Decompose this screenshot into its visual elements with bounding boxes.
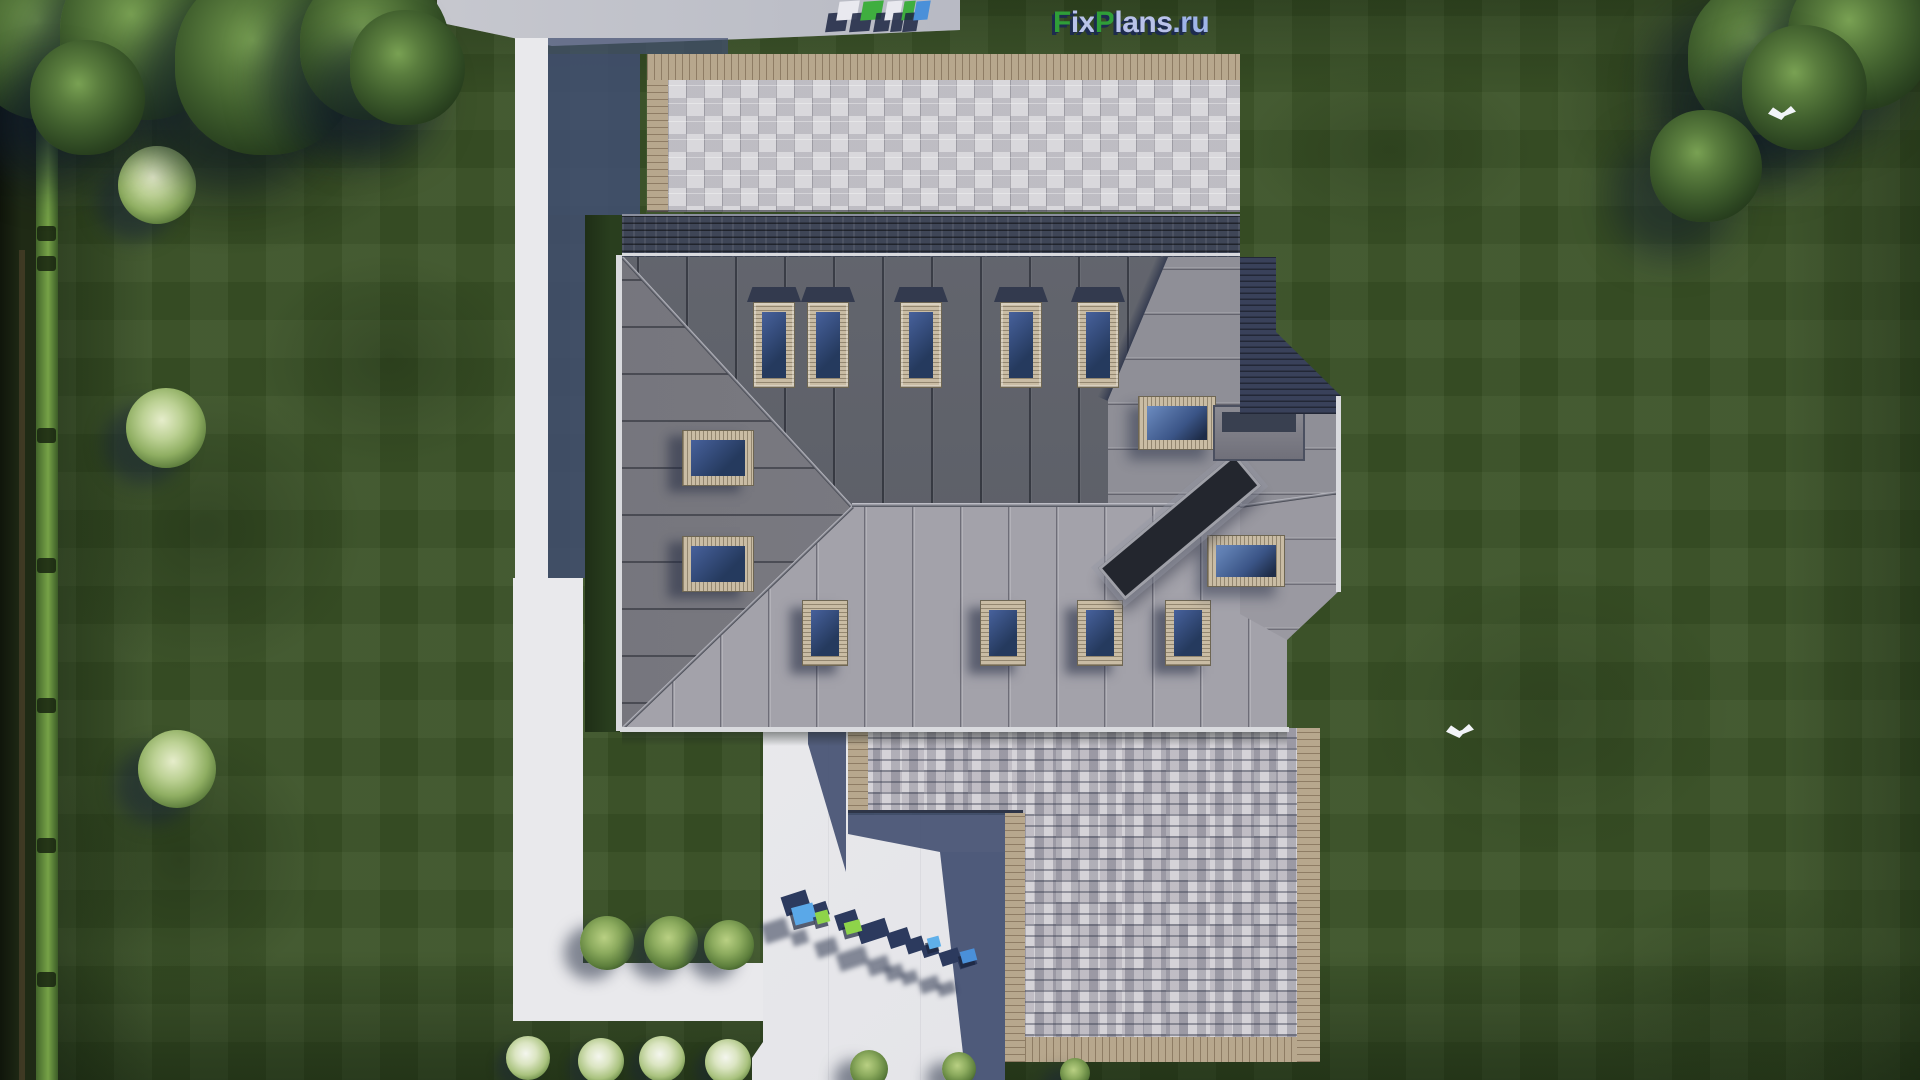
logo-part-fix-ix: ix <box>1071 6 1095 39</box>
patio-wood-border-top <box>647 54 1240 80</box>
garage-step-edge <box>848 810 1023 813</box>
patio-wing <box>647 54 1240 212</box>
roof-skylight <box>1077 600 1123 666</box>
logo-part-ru: .ru <box>1172 6 1209 39</box>
site-logo: FixPlans.ru <box>1053 6 1209 40</box>
skylight-glass <box>1086 610 1114 656</box>
boundary-fence <box>0 0 36 1080</box>
fascia-west <box>616 255 622 731</box>
garage-border-bottom <box>1025 1037 1320 1062</box>
walkway-horizontal <box>513 963 763 1021</box>
roof-skylight <box>980 600 1026 666</box>
walkway-vertical <box>515 38 548 578</box>
patio-wood-border-left <box>647 80 668 212</box>
eave-shadow <box>622 732 1287 746</box>
logo-part-plans-lans: lans <box>1114 6 1172 39</box>
house-shadow-band <box>548 215 585 578</box>
roof-skylight <box>802 600 848 666</box>
fascia-north <box>622 253 1240 256</box>
fence-rail <box>19 250 25 1080</box>
skylight-glass <box>811 610 839 656</box>
logo-part-plans-p: P <box>1095 6 1115 39</box>
garage-border-right <box>1297 728 1320 1062</box>
aerial-site-render: FixPlans.ru <box>0 0 1920 1080</box>
hedge-row <box>36 30 58 1080</box>
skylight-glass <box>1174 610 1202 656</box>
fascia-wing-east <box>1336 396 1341 592</box>
roof-skylight <box>1165 600 1211 666</box>
walkway-vertical-wide <box>513 578 583 1021</box>
skylight-glass <box>989 610 1017 656</box>
letters-shadow-top <box>548 38 728 54</box>
patio-edge-line <box>647 210 1240 212</box>
house-shadow-upper <box>548 54 640 215</box>
garage-border-inner <box>1005 813 1025 1062</box>
logo-part-fix-f: F <box>1053 6 1071 39</box>
patio-pavers <box>668 80 1240 212</box>
